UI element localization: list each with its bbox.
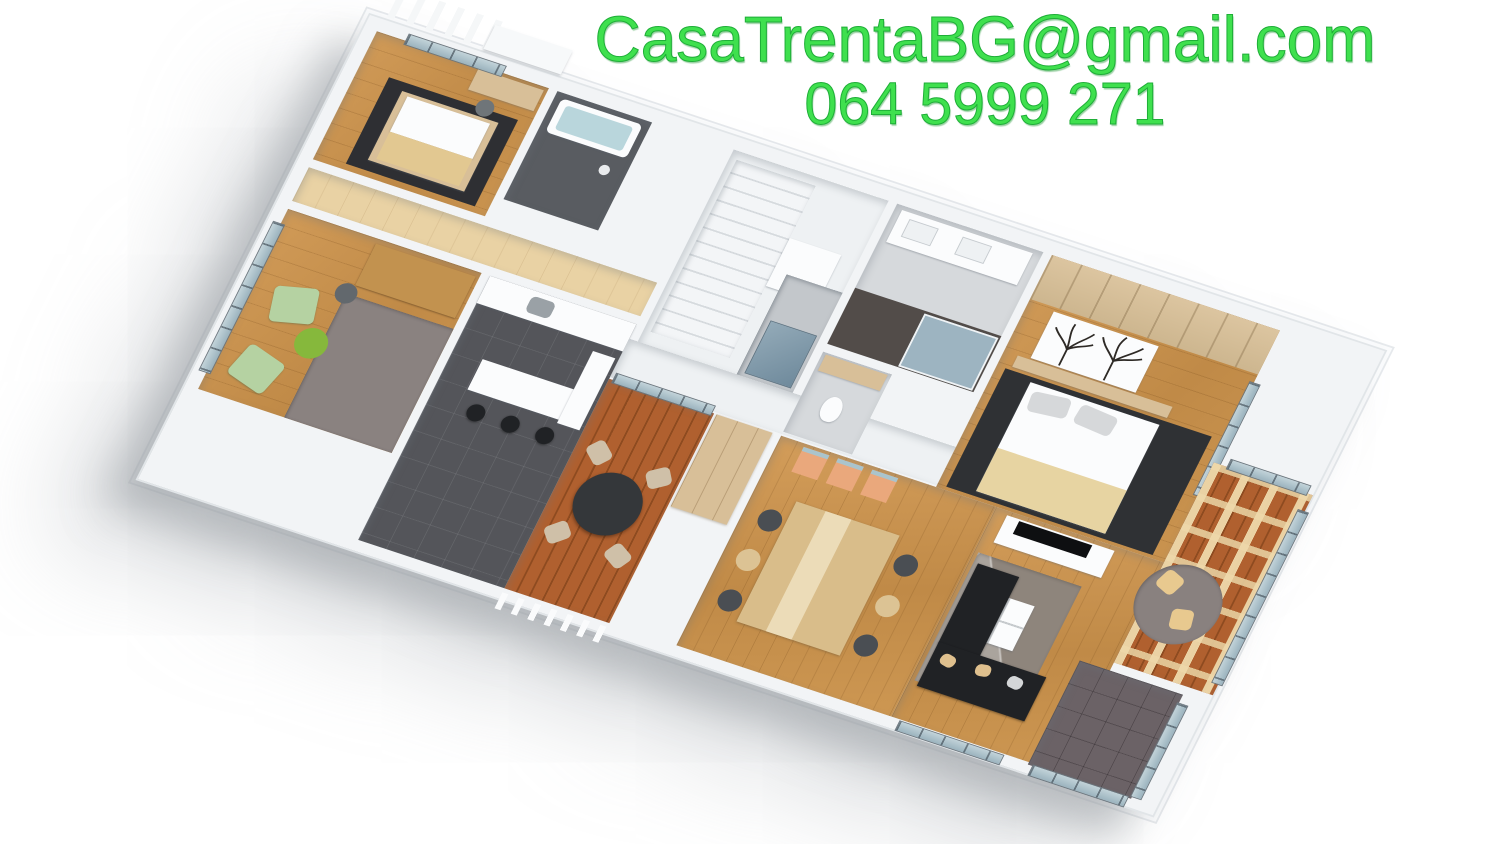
bar-stool-1 [463, 402, 488, 424]
floor-plan-render [138, 15, 1385, 815]
green-armchair-1 [268, 285, 320, 324]
terrace-table [561, 464, 654, 544]
peach-stool-2 [826, 458, 864, 491]
page: { "overlay": { "email": "CasaTrentaBG@gm… [0, 0, 1500, 844]
wall-lamp [597, 164, 612, 177]
dining-chair-5 [871, 592, 904, 620]
peach-stool-3 [860, 470, 898, 503]
contact-email: CasaTrentaBG@gmail.com [594, 6, 1375, 74]
terrace-chair-2 [645, 466, 673, 490]
terrace-chair-4 [602, 541, 633, 570]
dining-chair-4 [889, 551, 922, 579]
peach-stool-1 [791, 447, 829, 480]
bar-stool-3 [532, 425, 557, 447]
dining-chair-6 [849, 631, 882, 659]
terrace-chair-3 [543, 519, 573, 545]
bar-stool-2 [498, 413, 523, 435]
green-armchair-2 [226, 343, 286, 396]
terrace-chair-1 [585, 439, 614, 467]
dining-chair-2 [732, 546, 765, 574]
contact-phone: 064 5999 271 [594, 74, 1375, 134]
contact-overlay: CasaTrentaBG@gmail.com 064 5999 271 [594, 6, 1375, 134]
toilet [816, 394, 847, 424]
